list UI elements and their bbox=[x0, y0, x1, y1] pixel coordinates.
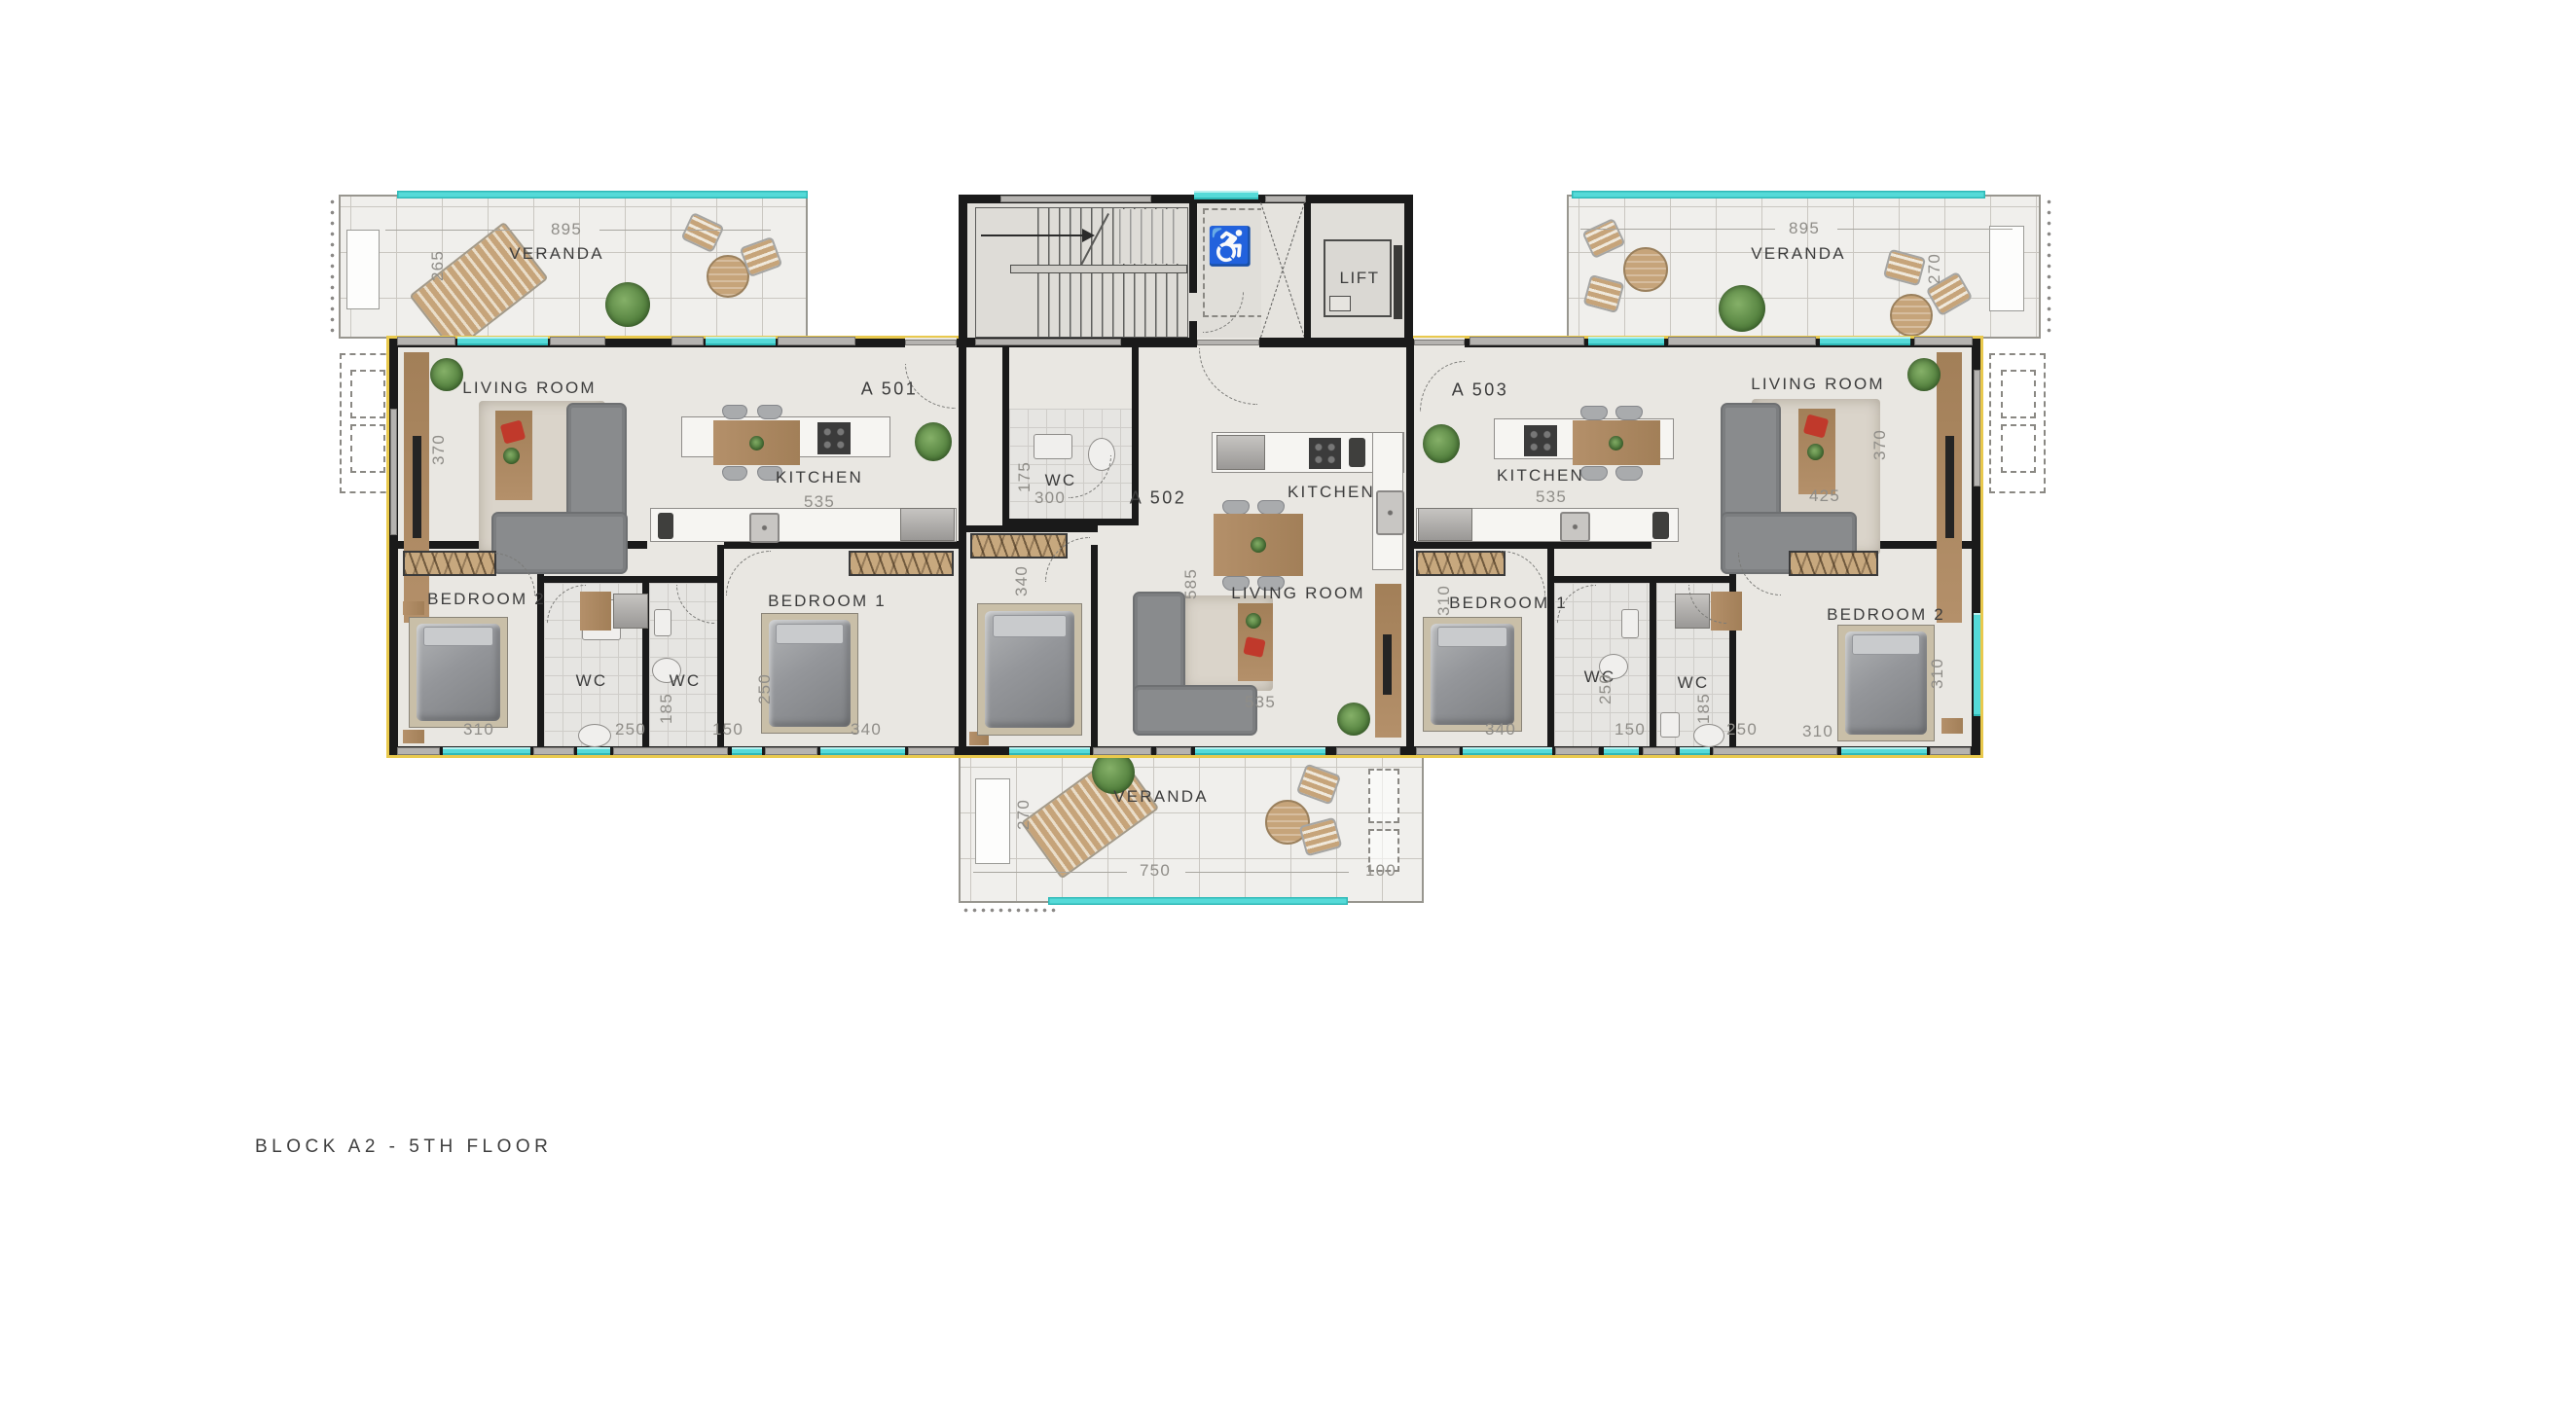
dining-chair bbox=[722, 466, 747, 481]
tv-a503 bbox=[1945, 436, 1954, 538]
wall-sill bbox=[613, 747, 728, 755]
wall-sill bbox=[397, 337, 455, 345]
wall bbox=[1304, 203, 1311, 338]
cooktop-a501 bbox=[817, 422, 851, 454]
dining-chair bbox=[1580, 406, 1608, 420]
apartment-label-a503: A 503 bbox=[1452, 380, 1509, 401]
wall-divider-a502-a503 bbox=[1406, 346, 1414, 746]
pergola-dots bbox=[328, 197, 337, 339]
round-table bbox=[1623, 247, 1668, 292]
dim-185-a501: 185 bbox=[657, 693, 676, 724]
fridge-a503 bbox=[1418, 508, 1472, 541]
laundry-machine-a501 bbox=[613, 594, 648, 629]
cabinet-a502 bbox=[1216, 435, 1265, 470]
dim-370-a503: 370 bbox=[1870, 429, 1890, 460]
pillow bbox=[423, 627, 493, 646]
nightstand bbox=[403, 601, 424, 615]
planter-box bbox=[346, 230, 380, 309]
room-label-wc2-a503: WC bbox=[1678, 673, 1710, 693]
stair-handrail bbox=[1010, 265, 1187, 273]
wall bbox=[966, 525, 1098, 532]
tray-a502 bbox=[1243, 636, 1265, 658]
room-label-bedroom1-a503: BEDROOM 1 bbox=[1449, 594, 1568, 613]
wardrobe-bedroom2-a503 bbox=[1789, 551, 1878, 576]
dim-line bbox=[1837, 229, 2013, 230]
window-bedroom1-a501 bbox=[820, 747, 905, 755]
wall-sill bbox=[533, 747, 574, 755]
cooktop-a502 bbox=[1309, 438, 1341, 469]
lift-counterweight bbox=[1329, 296, 1351, 311]
room-label-lift: LIFT bbox=[1340, 269, 1380, 288]
lounger-outline bbox=[1989, 226, 2024, 311]
dim-line bbox=[973, 872, 1127, 873]
room-label-living-a503: LIVING ROOM bbox=[1751, 375, 1885, 394]
room-label-kitchen-a502: KITCHEN bbox=[1288, 483, 1375, 502]
wall-sill bbox=[1265, 196, 1306, 202]
dim-535-a501: 535 bbox=[804, 492, 835, 512]
dining-chair bbox=[1615, 406, 1643, 420]
room-label-bedroom2-a501: BEDROOM 2 bbox=[427, 590, 546, 609]
wall bbox=[1002, 519, 1139, 525]
ghost-furniture bbox=[1368, 769, 1399, 823]
wall bbox=[1091, 545, 1098, 746]
dining-chair bbox=[757, 405, 782, 419]
stair-treads-dashed bbox=[1119, 209, 1183, 264]
bed-bedroom1-a503 bbox=[1423, 617, 1522, 732]
wall-sill bbox=[1336, 747, 1400, 755]
window-bedroom2-a501 bbox=[443, 747, 530, 755]
wall bbox=[1414, 541, 1651, 549]
sink-a503 bbox=[1560, 512, 1590, 542]
coffee-machine-a502 bbox=[1349, 438, 1365, 467]
ghost-furniture bbox=[2001, 370, 2036, 418]
dim-310-a501: 310 bbox=[463, 720, 494, 739]
dim-895-tl: 895 bbox=[551, 220, 582, 239]
window-kitchen-a503 bbox=[1588, 337, 1664, 345]
dim-100-b: 100 bbox=[1365, 861, 1397, 881]
window-wc1-a501 bbox=[577, 747, 610, 755]
dining-chair bbox=[1615, 466, 1643, 481]
apartment-label-a501: A 501 bbox=[861, 379, 919, 400]
pillow bbox=[993, 615, 1067, 637]
floor-plan-canvas: VERANDA 895 265 VERANDA 895 270 VERANDA … bbox=[0, 0, 2576, 1406]
sofa-a502 bbox=[1133, 685, 1257, 736]
wall-divider-a501-a502 bbox=[959, 346, 966, 746]
table-plant bbox=[1246, 613, 1261, 629]
dim-175-a502: 175 bbox=[1015, 461, 1034, 492]
dim-310-a503: 310 bbox=[1802, 722, 1833, 741]
ghost-furniture bbox=[350, 424, 385, 473]
dim-250-a503: 250 bbox=[1726, 720, 1758, 739]
room-label-veranda-tl: VERANDA bbox=[509, 244, 604, 264]
wall-sill bbox=[1643, 747, 1676, 755]
room-label-bedroom2-a503: BEDROOM 2 bbox=[1827, 605, 1945, 625]
window-kitchen-a501 bbox=[706, 337, 776, 345]
window-bedroom-a502 bbox=[1009, 747, 1090, 755]
dim-585-a502: 585 bbox=[1181, 568, 1201, 599]
window-wc2-a503 bbox=[1680, 747, 1710, 755]
wall-sill bbox=[550, 337, 605, 345]
wall-sill bbox=[390, 409, 397, 535]
wall bbox=[1189, 321, 1197, 341]
table-plant bbox=[749, 436, 764, 451]
wall-sill bbox=[1914, 337, 1973, 345]
dim-895-tr: 895 bbox=[1789, 219, 1820, 238]
room-label-kitchen-a501: KITCHEN bbox=[776, 468, 863, 487]
dim-270-tr: 270 bbox=[1925, 253, 1944, 284]
wall bbox=[1650, 583, 1656, 746]
washbasin bbox=[654, 609, 671, 636]
lift-mechanism bbox=[1394, 245, 1402, 319]
wall-sill bbox=[1668, 337, 1816, 345]
dim-line bbox=[385, 230, 533, 231]
room-label-wc2-a501: WC bbox=[670, 671, 702, 691]
table-plant-a501 bbox=[503, 448, 520, 464]
door-sill bbox=[1414, 340, 1465, 345]
washbasin-a502 bbox=[1034, 434, 1072, 459]
wall-sill bbox=[1156, 747, 1191, 755]
wall bbox=[1002, 346, 1009, 434]
pergola-dots bbox=[961, 905, 1059, 914]
dim-265-tl: 265 bbox=[428, 250, 448, 281]
tv-a501 bbox=[413, 436, 421, 538]
wall-sill bbox=[671, 337, 704, 345]
ghost-furniture bbox=[350, 370, 385, 418]
dim-250-a501: 250 bbox=[615, 720, 646, 739]
plant-entry-a503 bbox=[1423, 424, 1460, 463]
dim-300-a502: 300 bbox=[1034, 488, 1066, 508]
wall-sill bbox=[765, 747, 817, 755]
coffee-machine-a503 bbox=[1652, 512, 1669, 539]
dining-chair bbox=[1257, 500, 1285, 515]
glass-railing bbox=[1572, 191, 1985, 198]
toilet bbox=[578, 724, 611, 747]
wall-sill bbox=[975, 339, 1121, 345]
table-plant bbox=[1807, 444, 1824, 460]
wall bbox=[1554, 576, 1729, 583]
wall-sill bbox=[908, 747, 955, 755]
wall bbox=[1189, 203, 1197, 293]
wall-sill bbox=[1469, 337, 1584, 345]
plant-entry-a501 bbox=[915, 422, 952, 461]
wardrobe-bedroom1-a501 bbox=[849, 551, 954, 576]
dim-150-a501: 150 bbox=[712, 720, 744, 739]
wall-sill bbox=[1974, 370, 1980, 487]
wardrobe-bedroom1-a503 bbox=[1416, 551, 1506, 576]
window-core bbox=[1194, 191, 1258, 199]
wall bbox=[1729, 551, 1736, 746]
dim-535-a502: 535 bbox=[1245, 693, 1276, 712]
dim-250v-a501: 250 bbox=[755, 673, 775, 704]
window-living-a501 bbox=[457, 337, 548, 345]
dim-425-a503: 425 bbox=[1809, 487, 1840, 506]
bed-bedroom1-a501 bbox=[761, 613, 858, 734]
room-label-wc1-a501: WC bbox=[576, 671, 608, 691]
dining-chair bbox=[1222, 500, 1250, 515]
table-plant bbox=[1609, 436, 1623, 451]
dim-340-a502: 340 bbox=[1012, 565, 1032, 596]
sliding-door-living-a502 bbox=[1195, 747, 1325, 755]
dim-270-b: 270 bbox=[1014, 799, 1034, 830]
dim-150-a503: 150 bbox=[1615, 720, 1646, 739]
wall-sill bbox=[1930, 747, 1971, 755]
dim-line bbox=[1185, 872, 1349, 873]
dim-370-a501: 370 bbox=[429, 434, 449, 465]
wheelchair-icon: ♿ bbox=[1207, 229, 1252, 266]
wall bbox=[544, 576, 724, 583]
washbasin bbox=[1660, 712, 1680, 738]
window-bedroom2-a503 bbox=[1841, 747, 1927, 755]
washbasin bbox=[1621, 609, 1639, 638]
dim-185-a503: 185 bbox=[1694, 693, 1714, 724]
wall-sill bbox=[1000, 196, 1151, 202]
window-bedroom1-a503 bbox=[1463, 747, 1552, 755]
sink-a502 bbox=[1376, 490, 1404, 535]
nightstand bbox=[403, 730, 424, 743]
dim-340-a503: 340 bbox=[1485, 720, 1516, 739]
toilet bbox=[1693, 724, 1724, 747]
wall bbox=[717, 545, 724, 746]
potted-plant bbox=[605, 282, 650, 327]
dim-line bbox=[1580, 229, 1775, 230]
pergola-dots bbox=[2045, 197, 2053, 339]
window-side-a503 bbox=[1974, 613, 1980, 716]
dim-line bbox=[599, 230, 771, 231]
plan-title: BLOCK A2 - 5TH FLOOR bbox=[255, 1136, 552, 1158]
dim-535-a503: 535 bbox=[1536, 487, 1567, 507]
door-sill bbox=[905, 340, 957, 345]
bed-bedroom2-a503 bbox=[1837, 625, 1935, 741]
plant-a503 bbox=[1907, 358, 1941, 391]
wall-sill bbox=[1093, 747, 1151, 755]
window-wc2-a501 bbox=[732, 747, 762, 755]
room-label-bedroom1-a501: BEDROOM 1 bbox=[768, 592, 887, 611]
room-label-living-a501: LIVING ROOM bbox=[462, 379, 597, 398]
room-label-veranda-b: VERANDA bbox=[1113, 787, 1209, 807]
coffee-machine-a501 bbox=[658, 513, 673, 539]
room-label-kitchen-a503: KITCHEN bbox=[1497, 466, 1584, 486]
wall-sill bbox=[1416, 747, 1460, 755]
wall bbox=[537, 551, 544, 746]
door-sill bbox=[1197, 340, 1259, 345]
pillow bbox=[1852, 634, 1921, 655]
table-plant bbox=[1251, 537, 1266, 553]
glass-railing bbox=[397, 191, 808, 198]
plant-a501 bbox=[430, 358, 463, 391]
potted-plant bbox=[1719, 285, 1765, 332]
stair-direction-arrow bbox=[981, 234, 1084, 236]
round-table bbox=[1890, 294, 1933, 337]
bed-a502 bbox=[977, 603, 1082, 736]
dim-310v-a503: 310 bbox=[1434, 585, 1454, 616]
room-label-wc-a502: WC bbox=[1045, 471, 1077, 490]
bed-bedroom2-a501 bbox=[409, 617, 508, 728]
wardrobe-bedroom2-a501 bbox=[403, 551, 496, 576]
apartment-label-a502: A 502 bbox=[1130, 488, 1187, 509]
room-label-living-a502: LIVING ROOM bbox=[1231, 584, 1365, 603]
dim-340-a501: 340 bbox=[851, 720, 882, 739]
planter-box bbox=[975, 778, 1010, 864]
wall-sill bbox=[778, 337, 855, 345]
wall-sill bbox=[1555, 747, 1599, 755]
glass-railing bbox=[1048, 897, 1348, 905]
fridge-a501 bbox=[900, 508, 955, 541]
sink-a501 bbox=[749, 513, 780, 543]
dim-750-b: 750 bbox=[1140, 861, 1171, 881]
wall bbox=[1002, 428, 1009, 525]
wall bbox=[1547, 545, 1554, 746]
window-wc1-a503 bbox=[1604, 747, 1639, 755]
wall-sill bbox=[1713, 747, 1837, 755]
dining-chair bbox=[1580, 466, 1608, 481]
dim-250v-a503: 250 bbox=[1596, 673, 1615, 704]
pillow bbox=[776, 624, 845, 645]
ghost-furniture bbox=[2001, 424, 2036, 473]
room-label-veranda-tr: VERANDA bbox=[1751, 244, 1846, 264]
nightstand bbox=[1941, 718, 1963, 734]
dim-310r-a503: 310 bbox=[1928, 658, 1947, 689]
wall-sill bbox=[397, 747, 440, 755]
tv-a502 bbox=[1383, 634, 1392, 695]
window-living-a503 bbox=[1820, 337, 1910, 345]
plant-a502 bbox=[1337, 703, 1370, 736]
pillow bbox=[1437, 627, 1507, 647]
cooktop-a503 bbox=[1524, 425, 1557, 456]
round-table bbox=[707, 255, 749, 298]
dining-chair bbox=[722, 405, 747, 419]
